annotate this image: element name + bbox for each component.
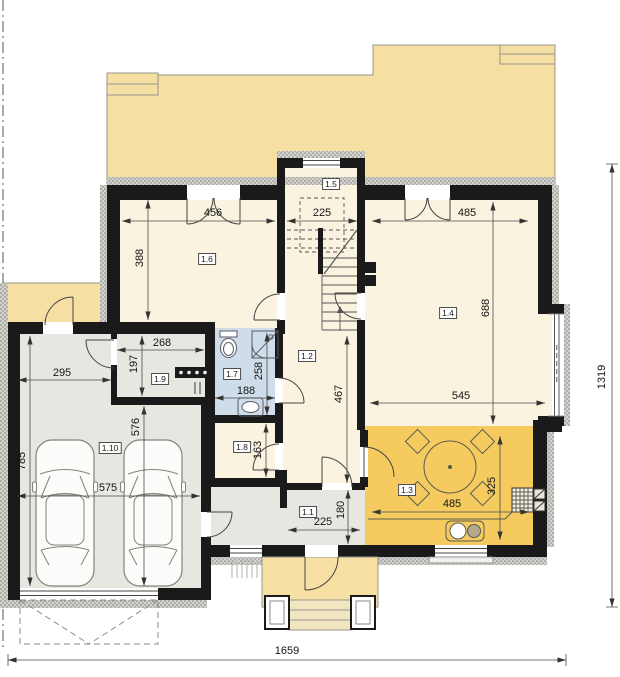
dim-total-height: 1319 xyxy=(596,365,608,389)
room-label-1-8: 1.8 xyxy=(233,441,251,453)
room-label-1-10: 1.10 xyxy=(99,442,122,454)
dim-entry-height: 180 xyxy=(335,501,347,519)
room-label-1-4: 1.4 xyxy=(439,307,457,319)
room-label-1-5: 1.5 xyxy=(322,178,340,190)
dim-pantry-height: 163 xyxy=(252,441,264,459)
toilet-icon xyxy=(220,331,237,358)
dim-hall-height: 467 xyxy=(333,385,345,403)
dim-living-height: 688 xyxy=(480,299,492,317)
kitchen-floor xyxy=(365,426,537,557)
dim-room16-height: 388 xyxy=(134,249,146,267)
floor-plan-drawing xyxy=(0,0,620,677)
dim-garage-height2: 576 xyxy=(130,418,142,436)
dim-garage-height: 785 xyxy=(16,452,28,470)
dim-total-width: 1659 xyxy=(275,645,299,657)
entrance-porch xyxy=(262,557,378,630)
dim-room16-width: 456 xyxy=(204,207,222,219)
room-label-1-7: 1.7 xyxy=(223,368,241,380)
garage-door xyxy=(20,588,158,644)
dim-kitchen-height: 325 xyxy=(486,477,498,495)
dim-stair-width: 225 xyxy=(313,207,331,219)
dim-garage-width: 575 xyxy=(99,482,117,494)
room-label-1-2: 1.2 xyxy=(298,350,316,362)
dim-kitchen-width: 485 xyxy=(443,498,461,510)
car-icon xyxy=(33,440,98,586)
room-label-1-3: 1.3 xyxy=(398,484,416,496)
room-label-1-6: 1.6 xyxy=(198,253,216,265)
floor-plan: 456 388 225 485 688 545 268 197 295 188 … xyxy=(0,0,620,677)
dim-wardrobe-width: 268 xyxy=(153,337,171,349)
room-label-1-9: 1.9 xyxy=(151,373,169,385)
dim-garage-width2: 295 xyxy=(53,367,71,379)
dim-bath-height: 258 xyxy=(253,362,265,380)
room-label-1-1: 1.1 xyxy=(299,506,317,518)
dim-living-width2: 545 xyxy=(452,390,470,402)
dim-living-width: 485 xyxy=(458,207,476,219)
car-icon xyxy=(121,440,186,586)
dim-bath-width: 188 xyxy=(237,385,255,397)
dim-wardrobe-height: 197 xyxy=(128,355,140,373)
